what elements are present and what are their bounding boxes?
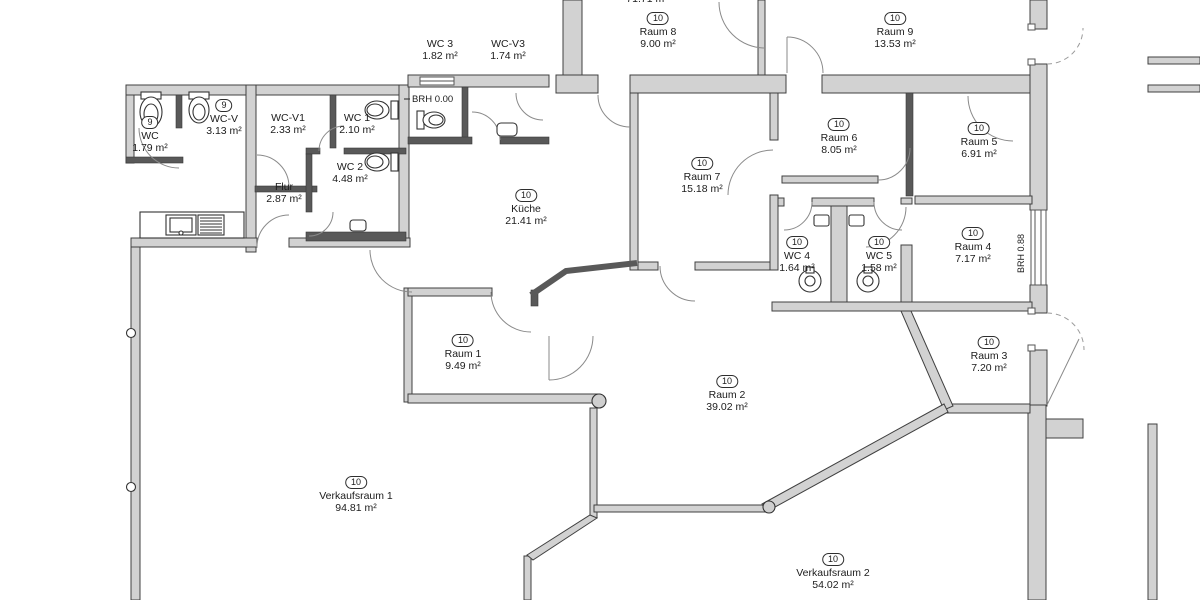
room-label-wc-v3: WC-V3 1.74 m²	[490, 38, 526, 63]
room-name: WC 2	[332, 161, 368, 173]
room-label-verkaufsraum-1: 10 Verkaufsraum 1 94.81 m²	[319, 476, 393, 515]
room-label-raum-5: 10 Raum 5 6.91 m²	[961, 122, 998, 161]
room-badge: 10	[828, 118, 850, 131]
walls-thick	[126, 0, 1200, 600]
room-area: 1.82 m²	[422, 50, 458, 62]
room-badge: 10	[691, 157, 713, 170]
room-area: 4.48 m²	[332, 173, 368, 185]
room-label-wc-3: WC 3 1.82 m²	[422, 38, 458, 63]
door-leaf	[1047, 339, 1079, 405]
room-badge: 9	[141, 116, 158, 129]
room-label-verkaufsraum-2: 10 Verkaufsraum 2 54.02 m²	[796, 553, 870, 592]
room-area: 2.87 m²	[266, 193, 302, 205]
room-area: 1.74 m²	[490, 50, 526, 62]
room-area: 1.79 m²	[132, 142, 168, 154]
room-area: 2.33 m²	[270, 124, 306, 136]
room-label-raum-2: 10 Raum 2 39.02 m²	[706, 375, 747, 414]
brh-window-annotation: BRH 0.88	[1016, 227, 1026, 273]
room-name: WC 3	[422, 38, 458, 50]
room-area: 2.10 m²	[339, 124, 375, 136]
room-name: Raum 6	[821, 132, 858, 144]
room-label-raum-4: 10 Raum 4 7.17 m²	[955, 227, 992, 266]
room-name: WC 5	[861, 250, 897, 262]
room-badge: 10	[716, 375, 738, 388]
room-area: 54.02 m²	[796, 579, 870, 591]
room-label-raum-8: 10 Raum 8 9.00 m²	[640, 12, 677, 51]
toilet-icon	[417, 111, 445, 129]
room-badge: 10	[962, 227, 984, 240]
floor-plan-drawing	[0, 0, 1200, 600]
room-name: WC 1	[339, 112, 375, 124]
room-area: 1.58 m²	[861, 262, 897, 274]
room-label-raum-6: 10 Raum 6 8.05 m²	[821, 118, 858, 157]
room-label-wc-v: 9 WC-V 3.13 m²	[206, 99, 242, 138]
room-area: 39.02 m²	[706, 401, 747, 413]
room-label-raum-1: 10 Raum 1 9.49 m²	[445, 334, 482, 373]
room-badge: 10	[968, 122, 990, 135]
room-name: Verkaufsraum 2	[796, 567, 870, 579]
room-name: Raum 1	[445, 348, 482, 360]
room-badge: 10	[978, 336, 1000, 349]
room-name: Flur	[266, 181, 302, 193]
room-area: 7.20 m²	[971, 362, 1008, 374]
clipped-top-label: 71.71 m²	[626, 0, 667, 5]
room-name: Raum 3	[971, 350, 1008, 362]
room-label-wc: 9 WC 1.79 m²	[132, 116, 168, 155]
room-area: 9.49 m²	[445, 360, 482, 372]
wall-toilet-icon	[350, 220, 366, 231]
room-area: 6.91 m²	[961, 148, 998, 160]
kitchen-sink-counter-icon	[140, 212, 244, 238]
room-name: Verkaufsraum 1	[319, 490, 393, 502]
room-area: 3.13 m²	[206, 125, 242, 137]
room-area: 1.64 m²	[779, 262, 815, 274]
room-area: 8.05 m²	[821, 144, 858, 156]
room-badge: 10	[452, 334, 474, 347]
room-area: 7.17 m²	[955, 253, 992, 265]
room-name: Raum 8	[640, 26, 677, 38]
room-badge: 10	[345, 476, 367, 489]
room-name: Raum 2	[706, 389, 747, 401]
room-badge: 10	[822, 553, 844, 566]
room-name: Raum 9	[874, 26, 915, 38]
room-name: WC-V1	[270, 112, 306, 124]
room-label-wc-v1: WC-V1 2.33 m²	[270, 112, 306, 137]
room-badge: 10	[515, 189, 537, 202]
door-swing-dashed-icon	[1047, 28, 1084, 350]
room-name: Raum 7	[681, 171, 722, 183]
room-badge: 10	[647, 12, 669, 25]
room-label-wc-4: 10 WC 4 1.64 m²	[779, 236, 815, 275]
brh-annotation: BRH 0.00	[412, 94, 453, 105]
cistern-icon	[814, 215, 829, 226]
room-badge: 10	[868, 236, 890, 249]
room-badge: 9	[215, 99, 232, 112]
room-name: Küche	[505, 203, 546, 215]
room-name: Raum 4	[955, 241, 992, 253]
room-label-wc-2: WC 2 4.48 m²	[332, 161, 368, 186]
room-name: WC-V	[206, 113, 242, 125]
wall-toilet-icon	[497, 123, 517, 136]
room-name: Raum 5	[961, 136, 998, 148]
room-label-raum-7: 10 Raum 7 15.18 m²	[681, 157, 722, 196]
cistern-icon	[849, 215, 864, 226]
toilet-icon	[365, 153, 398, 171]
room-area: 9.00 m²	[640, 38, 677, 50]
room-area: 94.81 m²	[319, 502, 393, 514]
room-label-raum-9: 10 Raum 9 13.53 m²	[874, 12, 915, 51]
room-name: WC-V3	[490, 38, 526, 50]
room-name: WC	[132, 130, 168, 142]
room-label-raum-3: 10 Raum 3 7.20 m²	[971, 336, 1008, 375]
room-label-flur: Flur 2.87 m²	[266, 181, 302, 206]
room-label-kueche: 10 Küche 21.41 m²	[505, 189, 546, 228]
room-badge: 10	[884, 12, 906, 25]
room-area: 15.18 m²	[681, 183, 722, 195]
room-name: WC 4	[779, 250, 815, 262]
room-area: 13.53 m²	[874, 38, 915, 50]
room-label-wc-5: 10 WC 5 1.58 m²	[861, 236, 897, 275]
room-label-wc-1: WC 1 2.10 m²	[339, 112, 375, 137]
room-area: 21.41 m²	[505, 215, 546, 227]
floor-plan: 9 WC 1.79 m² 9 WC-V 3.13 m² WC-V1 2.33 m…	[0, 0, 1200, 600]
room-badge: 10	[786, 236, 808, 249]
